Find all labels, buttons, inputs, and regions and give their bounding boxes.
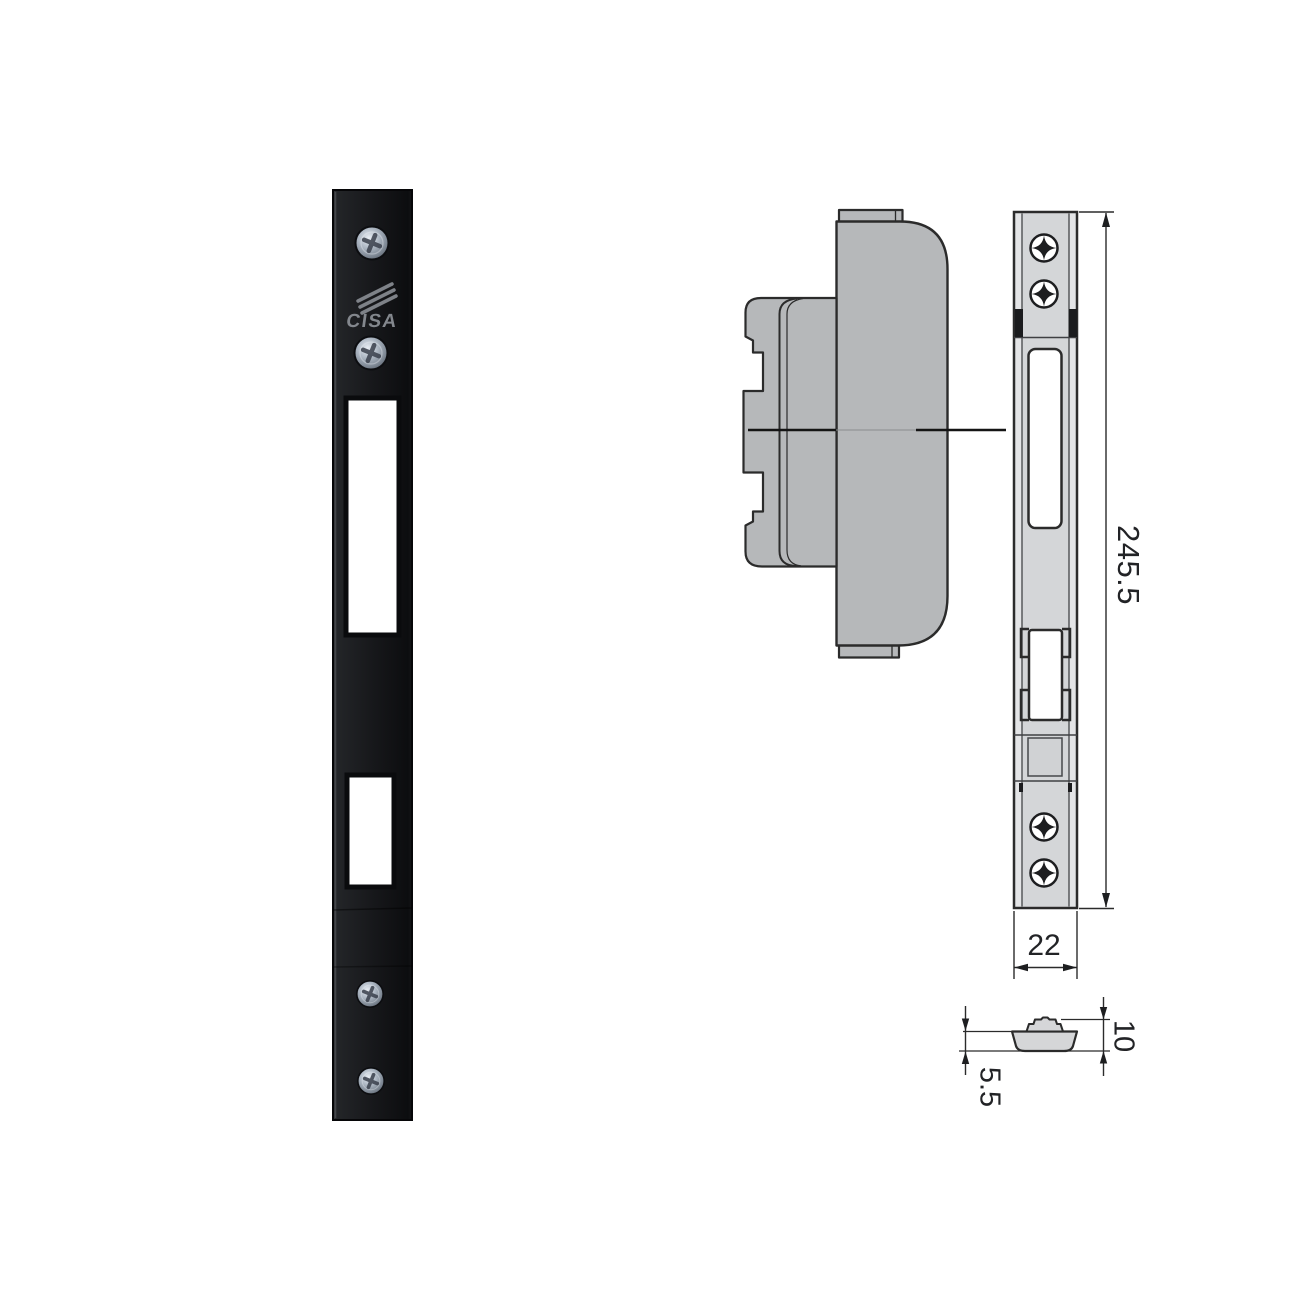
screw-icon [358,1068,384,1094]
dimension-cup-depth [962,1006,969,1075]
phillips-screw-icon [1031,281,1058,308]
lock-main-body [837,222,948,646]
lock-bottom-tab [839,646,899,658]
phillips-screw-icon [1031,860,1058,887]
phillips-screw-icon [1031,814,1058,841]
lock-body-side-view [744,210,948,658]
latch-opening [347,775,394,887]
strike-plate-side-view [1014,212,1077,908]
width-dimension-label: 22 [1027,929,1060,963]
dimension-height [1079,212,1114,909]
screw-icon [356,227,389,260]
height-dimension-label: 245.5 [1110,525,1146,605]
total-depth-dimension-label: 10 [1107,1020,1140,1052]
screw-icon [357,981,383,1007]
cross-section-view [959,1018,1110,1052]
deadbolt-opening [346,398,399,635]
latch-slot [1029,630,1062,720]
screw-icon [355,337,388,370]
screenshot-root: CISA 245.5 22 10 5.5 [0,0,1300,1300]
deadbolt-slot [1029,349,1062,528]
lock-faceplate-flange [744,298,837,567]
lock-top-tab [839,210,903,222]
phillips-screw-icon [1031,235,1058,262]
technical-drawing [0,0,1300,1300]
cisa-brand-text: CISA [345,311,399,333]
cup-depth-dimension-label: 5.5 [973,1067,1006,1107]
